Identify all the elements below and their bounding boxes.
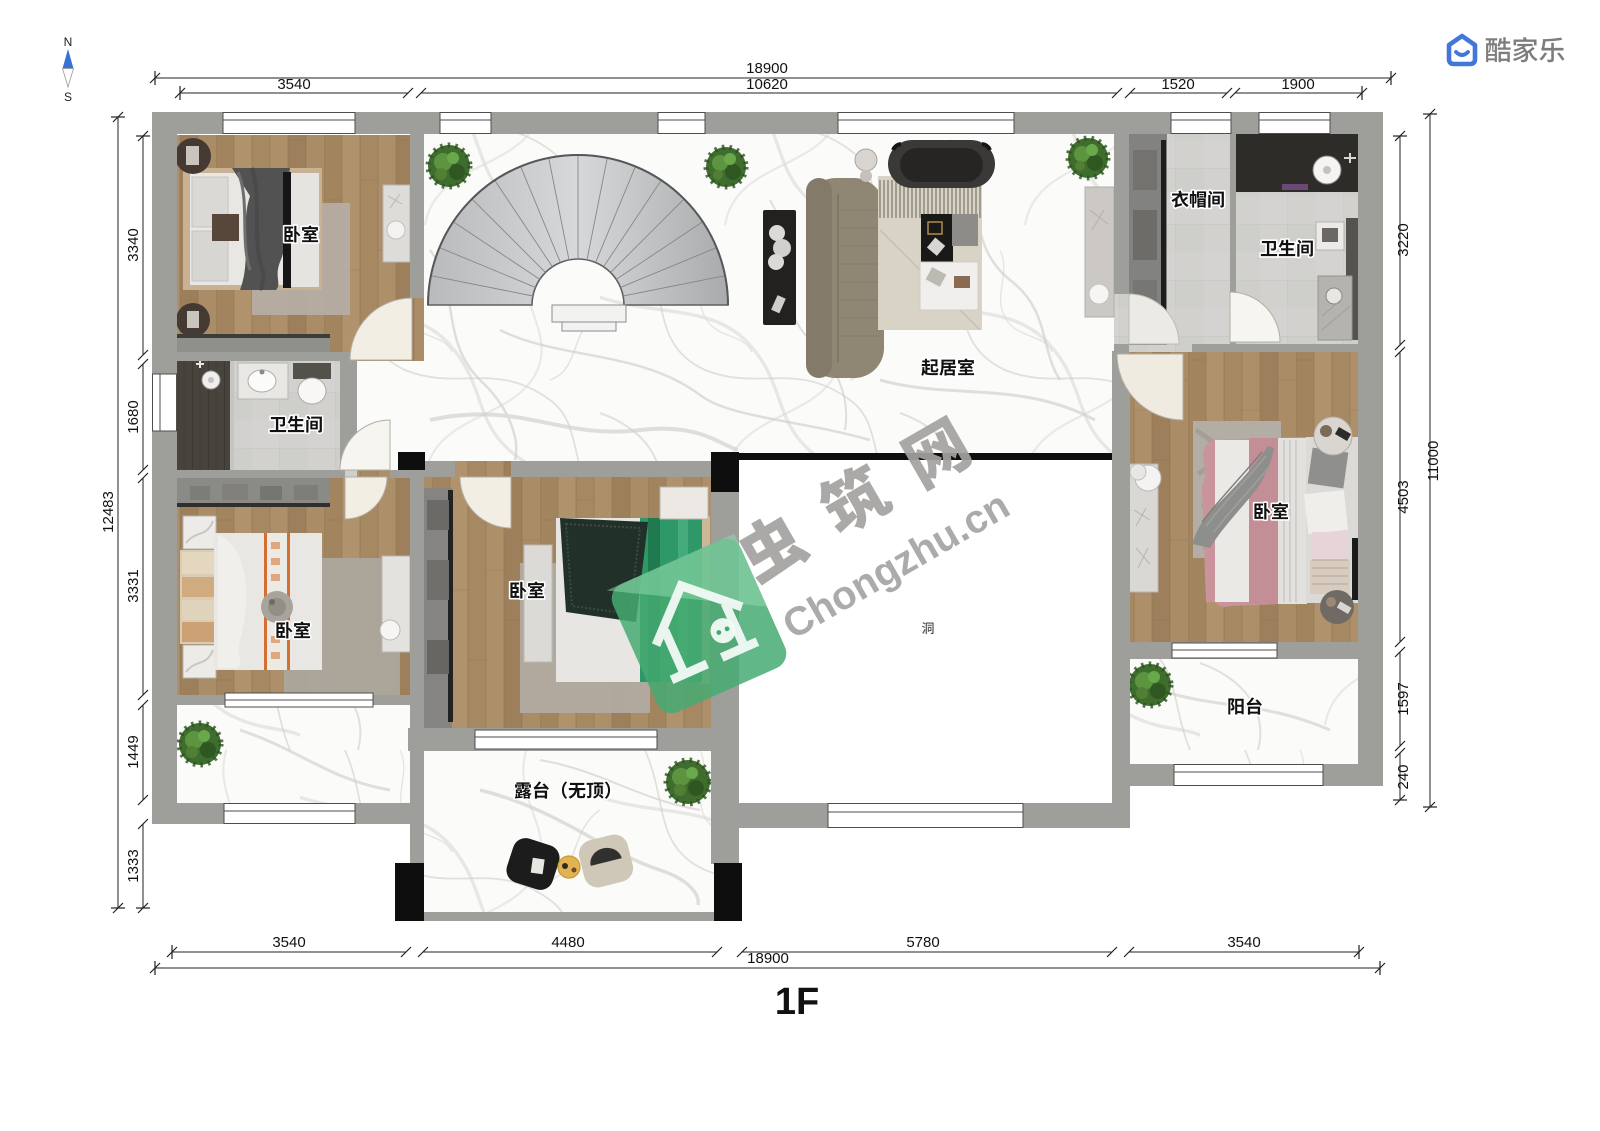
svg-text:5780: 5780 bbox=[906, 934, 939, 951]
svg-text:S: S bbox=[64, 90, 72, 104]
svg-text:N: N bbox=[64, 35, 73, 49]
svg-text:18900: 18900 bbox=[747, 950, 789, 967]
svg-text:10620: 10620 bbox=[746, 76, 788, 93]
svg-text:3540: 3540 bbox=[1227, 934, 1260, 951]
svg-text:1333: 1333 bbox=[125, 849, 142, 882]
svg-text:3540: 3540 bbox=[277, 76, 310, 93]
svg-text:1F: 1F bbox=[775, 981, 819, 1023]
svg-text:3540: 3540 bbox=[272, 934, 305, 951]
svg-text:1900: 1900 bbox=[1281, 76, 1314, 93]
svg-text:4480: 4480 bbox=[551, 934, 584, 951]
svg-text:1449: 1449 bbox=[125, 735, 142, 768]
svg-text:12483: 12483 bbox=[100, 491, 117, 533]
svg-text:1597: 1597 bbox=[1395, 682, 1412, 715]
svg-text:240: 240 bbox=[1395, 764, 1412, 789]
svg-text:4503: 4503 bbox=[1395, 480, 1412, 513]
svg-text:3220: 3220 bbox=[1395, 223, 1412, 256]
svg-text:3331: 3331 bbox=[125, 569, 142, 602]
svg-text:11000: 11000 bbox=[1425, 441, 1442, 482]
svg-text:18900: 18900 bbox=[746, 60, 788, 77]
svg-text:1680: 1680 bbox=[125, 400, 142, 433]
svg-text:1520: 1520 bbox=[1161, 76, 1194, 93]
svg-text:3340: 3340 bbox=[125, 228, 142, 261]
